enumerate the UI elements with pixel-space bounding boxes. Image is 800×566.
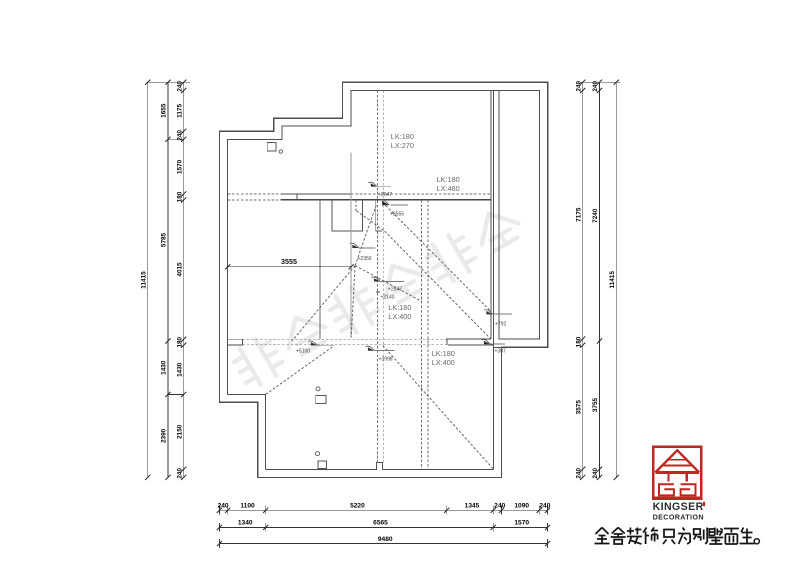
svg-text:LX:400: LX:400	[388, 312, 411, 321]
svg-text:+8555: +8555	[390, 211, 404, 217]
svg-text:LK:180: LK:180	[391, 132, 414, 141]
svg-text:2390: 2390	[161, 428, 168, 443]
svg-text:LK:180: LK:180	[437, 175, 460, 184]
svg-text:DECORATION: DECORATION	[653, 513, 704, 522]
svg-text:1570: 1570	[514, 520, 529, 527]
svg-text:LX:270: LX:270	[391, 141, 414, 150]
svg-text:+2647: +2647	[388, 286, 402, 292]
svg-text:3755: 3755	[592, 397, 599, 412]
svg-text:4015: 4015	[176, 262, 183, 277]
svg-text:+387: +387	[495, 349, 506, 355]
svg-text:LK:180: LK:180	[388, 303, 411, 312]
svg-text:7175: 7175	[575, 207, 582, 222]
svg-text:5220: 5220	[350, 503, 365, 510]
svg-text:1175: 1175	[176, 104, 183, 118]
svg-text:1340: 1340	[238, 520, 253, 527]
svg-text:180: 180	[176, 191, 183, 202]
svg-text:+792: +792	[495, 321, 506, 327]
svg-text:LK:180: LK:180	[432, 349, 455, 358]
svg-text:5785: 5785	[161, 232, 168, 247]
svg-text:240: 240	[218, 503, 229, 510]
svg-text:1570: 1570	[176, 159, 183, 174]
svg-text:1430: 1430	[176, 362, 183, 377]
svg-text:240: 240	[176, 130, 183, 141]
svg-text:3555: 3555	[281, 257, 297, 266]
svg-text:6565: 6565	[373, 520, 388, 527]
svg-text:+2647: +2647	[378, 192, 392, 198]
svg-text:LX:480: LX:480	[437, 184, 460, 193]
svg-text:+5100: +5100	[296, 348, 310, 354]
svg-text:1430: 1430	[161, 360, 168, 375]
svg-text:7240: 7240	[592, 208, 599, 223]
svg-text:240: 240	[176, 468, 183, 479]
svg-text:180: 180	[176, 336, 183, 347]
svg-text:1100: 1100	[240, 503, 255, 510]
svg-text:+3998: +3998	[379, 356, 393, 362]
svg-text:1090: 1090	[514, 503, 529, 510]
svg-text:2150: 2150	[176, 424, 183, 439]
svg-text:KINGSER: KINGSER	[653, 501, 704, 513]
svg-text:240: 240	[494, 503, 505, 510]
svg-text:9480: 9480	[378, 536, 393, 543]
svg-text:+2350: +2350	[358, 256, 372, 262]
svg-text:1655: 1655	[161, 103, 168, 118]
svg-text:11415: 11415	[140, 271, 147, 289]
svg-text:11415: 11415	[609, 271, 616, 289]
svg-text:240: 240	[592, 468, 599, 479]
svg-text:3575: 3575	[575, 400, 582, 415]
svg-text:1345: 1345	[465, 503, 480, 510]
svg-text:+2140: +2140	[381, 294, 395, 300]
svg-text:240: 240	[539, 503, 550, 510]
svg-text:180: 180	[575, 336, 582, 347]
svg-text:240: 240	[575, 468, 582, 479]
svg-text:LX:400: LX:400	[432, 358, 455, 367]
